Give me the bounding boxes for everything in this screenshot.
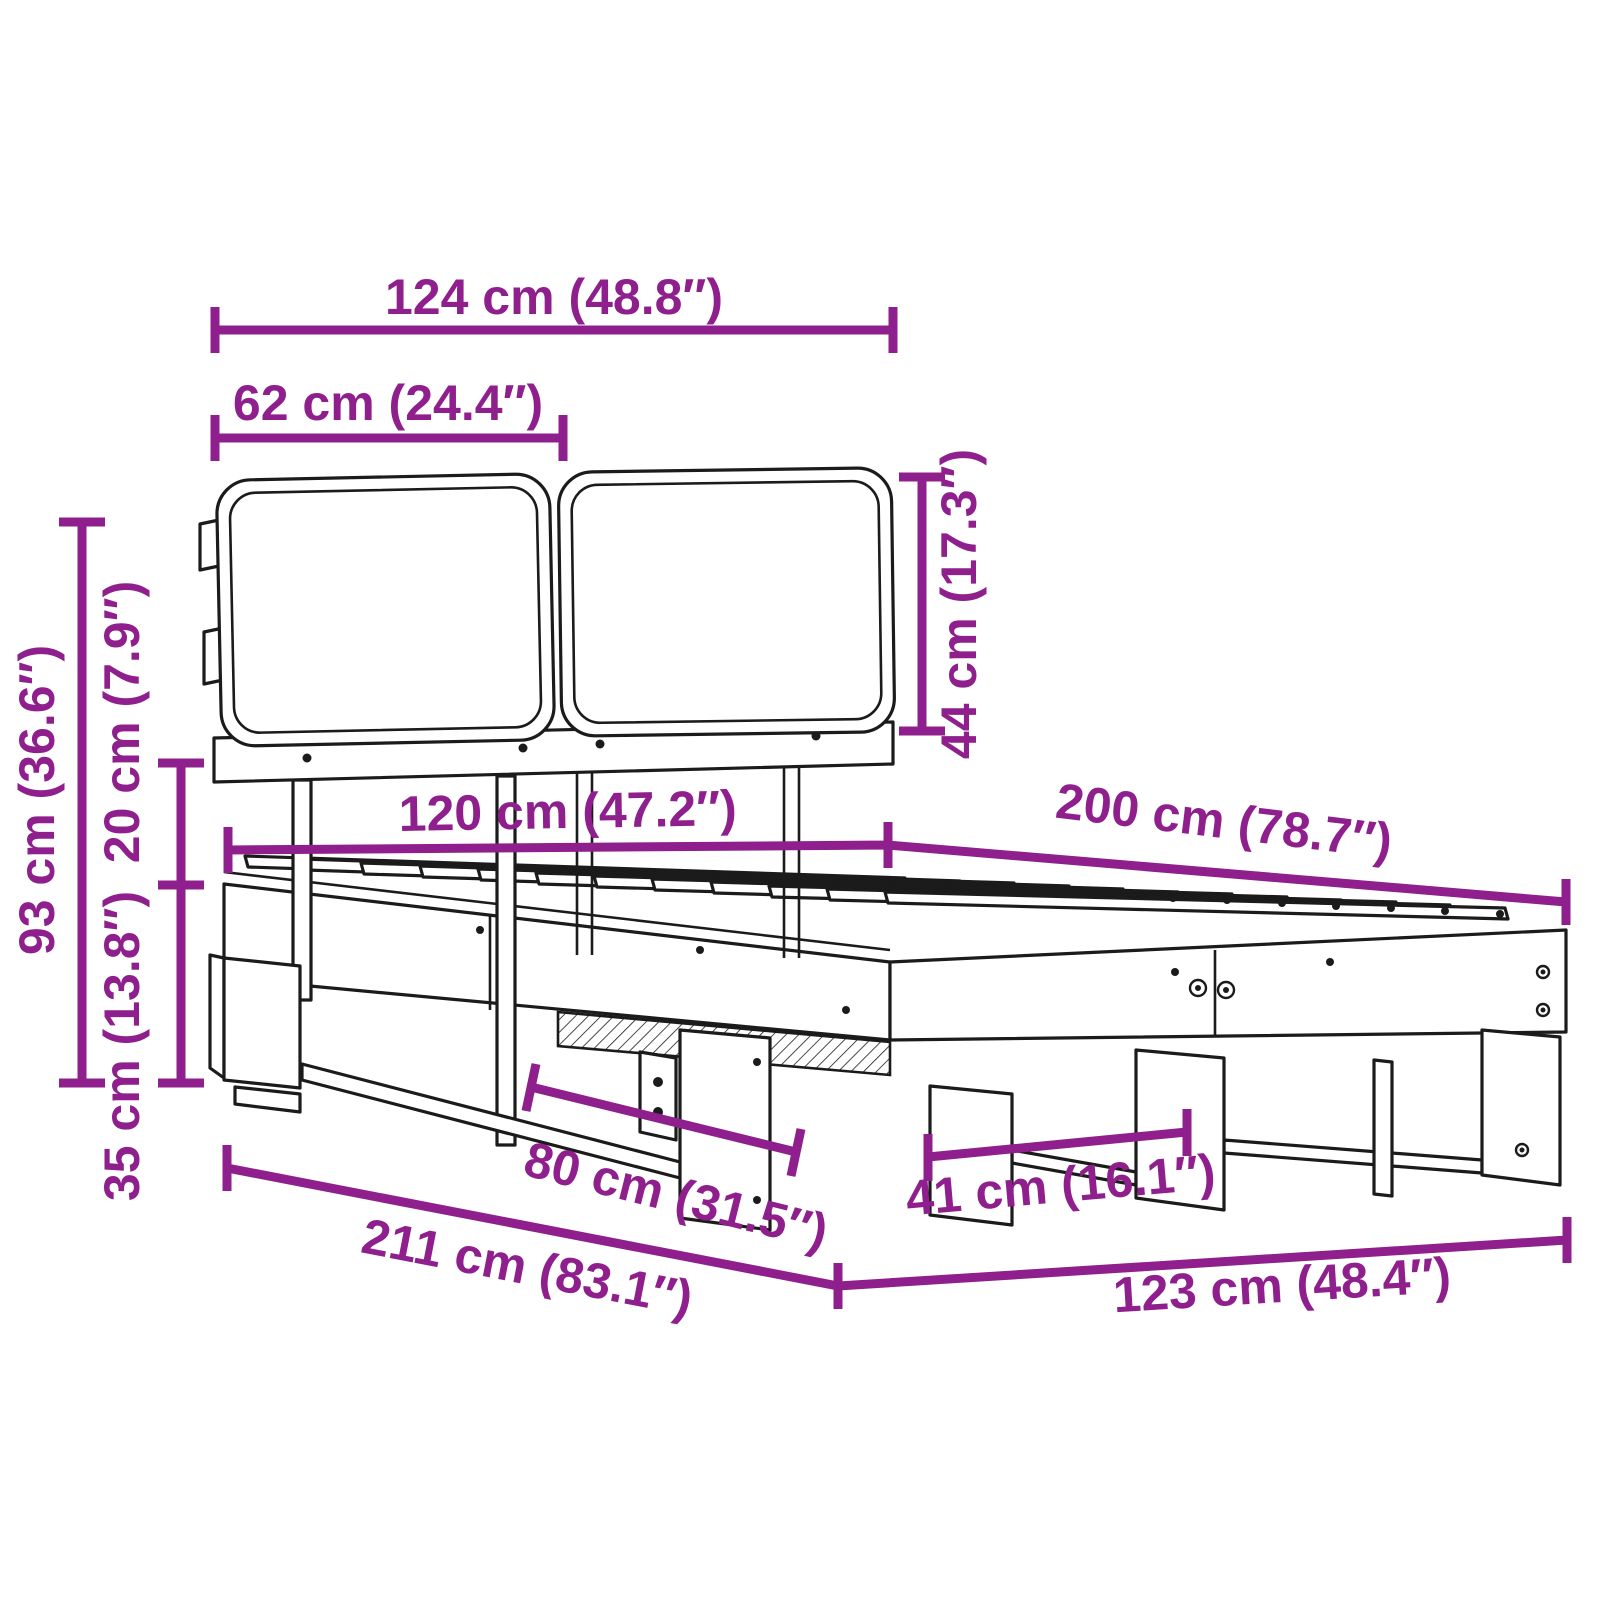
bracket-screw — [653, 1077, 663, 1087]
bolt-center — [1520, 1148, 1525, 1153]
rail-screw — [303, 754, 312, 763]
bolt-center — [1195, 985, 1201, 991]
dim-frame-height: 20 cm (7.9″) — [94, 581, 204, 885]
dim-label-124cm: 124 cm (48.8″) — [385, 269, 723, 325]
rail-screw — [596, 740, 605, 749]
slat-screw — [896, 880, 904, 888]
slat-screw — [1441, 907, 1449, 915]
slat-screw — [1496, 910, 1504, 918]
dim-label-20cm: 20 cm (7.9″) — [94, 581, 150, 863]
slat-screw — [951, 883, 959, 891]
screw — [842, 1006, 850, 1014]
dimension-diagram: 124 cm (48.8″) 62 cm (24.4″) 44 cm (17.3… — [0, 0, 1600, 1600]
rear-leg — [1374, 1060, 1392, 1196]
slat-screw — [1387, 904, 1395, 912]
slat-screw — [1169, 894, 1177, 902]
dim-label-62cm: 62 cm (24.4″) — [233, 375, 543, 431]
slat-screw — [1060, 888, 1068, 896]
dimension-lines: 124 cm (48.8″) 62 cm (24.4″) 44 cm (17.3… — [9, 269, 1567, 1327]
bolt-center — [1541, 1008, 1546, 1013]
dim-line — [158, 885, 204, 1083]
screw — [1171, 968, 1179, 976]
slat-screw — [1114, 891, 1122, 899]
leg-screw — [753, 1058, 761, 1066]
dim-label-120cm: 120 cm (47.2″) — [398, 780, 737, 842]
dim-label-35cm: 35 cm (13.8″) — [94, 891, 150, 1201]
dim-label-93cm: 93 cm (36.6″) — [9, 645, 65, 955]
leg-foot-pad — [235, 1087, 300, 1112]
dim-total-width: 123 cm (48.4″) — [838, 1217, 1567, 1323]
dim-headboard-total-width: 124 cm (48.8″) — [215, 269, 893, 353]
slat-screw — [1332, 902, 1340, 910]
diagram-canvas: 124 cm (48.8″) 62 cm (24.4″) 44 cm (17.3… — [0, 0, 1600, 1600]
slat-screw — [1278, 899, 1286, 907]
cushion-outer — [216, 474, 554, 747]
leg-head-left — [224, 958, 300, 1088]
leg-head-left-side — [210, 955, 224, 1078]
headboard-strut — [784, 765, 799, 958]
leg-foot-far — [1482, 1030, 1560, 1185]
dim-line — [158, 763, 204, 885]
bracket — [640, 1052, 676, 1140]
screw — [1326, 958, 1334, 966]
bolt-center — [1541, 970, 1546, 975]
dim-total-height: 93 cm (36.6″) — [9, 522, 105, 1083]
headboard-cushion-right — [558, 468, 895, 737]
dim-label-123cm: 123 cm (48.4″) — [1112, 1247, 1453, 1324]
dim-underbed-clearance: 35 cm (13.8″) — [94, 885, 204, 1201]
slat-screw — [1005, 885, 1013, 893]
dim-cushion-height: 44 cm (17.3″) — [899, 449, 987, 759]
cushion-outer — [558, 468, 895, 737]
headboard-cushion-left — [216, 474, 554, 747]
dim-label-44cm: 44 cm (17.3″) — [931, 449, 987, 759]
slat-screw — [1223, 896, 1231, 904]
dim-label-200cm: 200 cm (78.7″) — [1053, 773, 1395, 870]
bolt-center — [1223, 987, 1229, 993]
rail-screw — [519, 744, 528, 753]
stretcher-bar — [1224, 1140, 1482, 1173]
screw — [696, 946, 704, 954]
dim-cushion-width: 62 cm (24.4″) — [215, 375, 563, 461]
screw — [476, 926, 484, 934]
